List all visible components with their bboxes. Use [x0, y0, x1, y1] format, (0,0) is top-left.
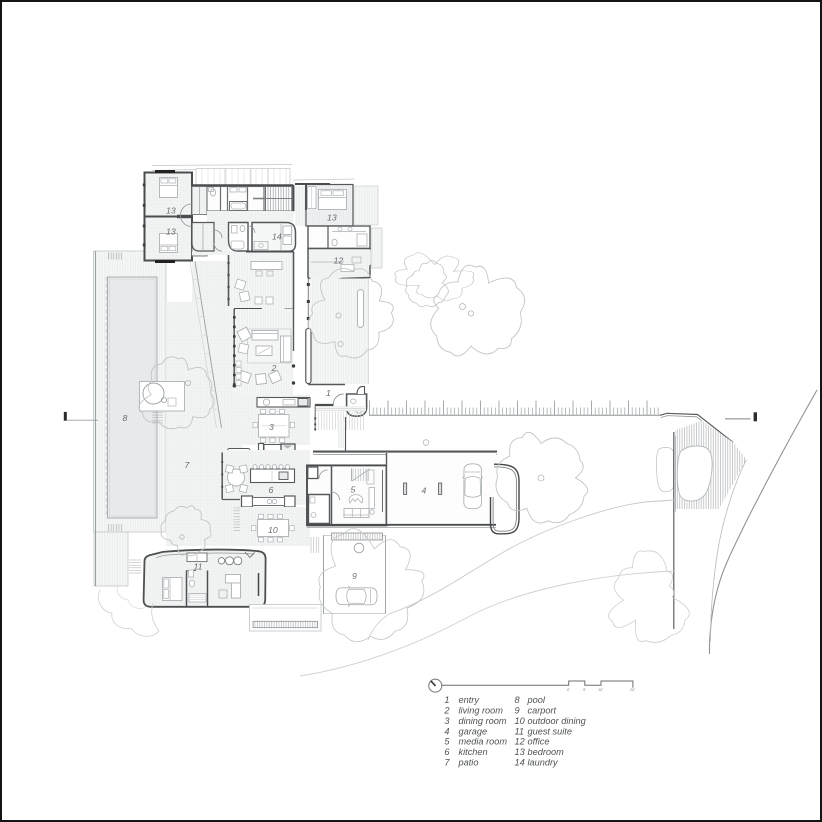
svg-text:7: 7	[444, 757, 450, 767]
svg-text:pool: pool	[527, 695, 546, 705]
svg-text:entry: entry	[459, 695, 481, 705]
svg-text:5': 5'	[583, 688, 586, 692]
svg-text:carport: carport	[528, 706, 557, 716]
svg-text:9: 9	[515, 706, 520, 716]
svg-text:5: 5	[444, 737, 450, 747]
svg-text:3: 3	[269, 422, 274, 432]
svg-text:kitchen: kitchen	[459, 747, 488, 757]
svg-text:media room: media room	[459, 737, 508, 747]
svg-text:office: office	[528, 737, 550, 747]
svg-text:10: 10	[515, 716, 526, 726]
svg-text:13: 13	[327, 213, 337, 223]
svg-text:1: 1	[444, 695, 449, 705]
svg-text:9: 9	[352, 571, 357, 581]
svg-text:4: 4	[444, 726, 449, 736]
svg-text:14: 14	[272, 232, 282, 242]
svg-text:guest suite: guest suite	[528, 726, 572, 736]
svg-text:10': 10'	[598, 688, 603, 692]
svg-text:14: 14	[515, 757, 525, 767]
svg-text:2: 2	[443, 706, 449, 716]
svg-text:13: 13	[166, 206, 176, 216]
svg-text:12: 12	[334, 256, 344, 266]
svg-text:0': 0'	[567, 688, 570, 692]
svg-text:20': 20'	[629, 688, 635, 692]
svg-text:10: 10	[268, 525, 278, 535]
svg-text:dining room: dining room	[459, 716, 507, 726]
svg-text:outdoor dining: outdoor dining	[528, 716, 587, 726]
svg-text:13: 13	[166, 227, 176, 237]
svg-text:8: 8	[123, 413, 128, 423]
svg-text:6: 6	[269, 485, 274, 495]
svg-text:laundry: laundry	[528, 757, 560, 767]
svg-text:5: 5	[351, 485, 356, 495]
svg-text:garage: garage	[459, 726, 488, 736]
svg-text:living room: living room	[459, 706, 504, 716]
svg-text:4: 4	[422, 486, 427, 496]
svg-text:bedroom: bedroom	[528, 747, 565, 757]
svg-text:11: 11	[515, 726, 525, 736]
svg-text:2: 2	[271, 363, 277, 373]
svg-text:12: 12	[515, 737, 525, 747]
svg-text:8: 8	[515, 695, 521, 705]
svg-text:6: 6	[444, 747, 450, 757]
svg-text:13: 13	[515, 747, 526, 757]
svg-text:11: 11	[194, 562, 203, 572]
svg-text:3: 3	[444, 716, 450, 726]
svg-text:patio: patio	[458, 757, 479, 767]
svg-text:1: 1	[326, 388, 331, 398]
